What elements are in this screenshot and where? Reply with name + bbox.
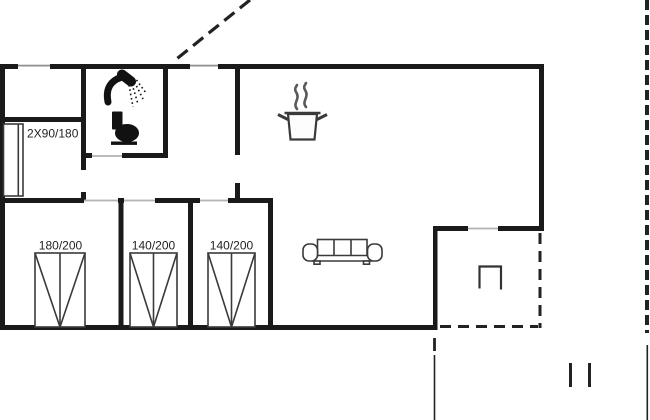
cooking-pot-icon <box>278 83 327 140</box>
bed-1-label: 180/200 <box>39 239 83 253</box>
window <box>18 65 50 67</box>
door-opening <box>468 228 498 230</box>
door-openings <box>84 155 498 229</box>
wall-segment <box>122 153 168 158</box>
floor-plan: 2X90/180 180/200 140/200 140/200 <box>0 0 650 420</box>
terrace-furniture-icon <box>480 267 502 290</box>
toilet-base <box>111 142 137 145</box>
toilet-icon <box>111 112 139 145</box>
shower-icon <box>107 75 146 108</box>
bed-3-label: 140/200 <box>210 239 254 253</box>
steam-wisp <box>304 83 306 107</box>
pot-handle-right <box>317 115 327 120</box>
bed-2-label: 140/200 <box>132 239 176 253</box>
sofa-foot <box>314 261 320 264</box>
wall-segment <box>228 198 273 203</box>
wall-segment <box>433 226 438 330</box>
wall-segment <box>0 64 5 330</box>
toilet-bowl <box>115 124 139 142</box>
wall-segment <box>498 226 544 231</box>
pot-body <box>288 114 317 140</box>
wall-segment <box>188 198 193 330</box>
double-bed-1 <box>35 253 85 327</box>
wall-segment <box>539 64 544 231</box>
floor-plan-drawing: 2X90/180 180/200 140/200 140/200 <box>0 0 650 420</box>
wall-segment <box>218 64 544 69</box>
wall-segment <box>0 117 84 122</box>
steam-wisp <box>295 85 297 109</box>
sofa-back <box>318 240 368 257</box>
wall-segment <box>155 198 200 203</box>
door-opening <box>200 200 228 202</box>
bunk-bed-label: 2X90/180 <box>27 127 79 141</box>
wall-segment <box>0 198 84 203</box>
shower-head <box>122 75 131 82</box>
wall-segment <box>119 198 124 330</box>
window <box>190 65 218 67</box>
sofa-arm-left <box>303 244 318 261</box>
bunk-bed-outline <box>4 124 24 196</box>
boundary-lines <box>174 0 647 420</box>
shower-arm <box>107 77 123 103</box>
spray-line <box>129 85 133 107</box>
wall-segment <box>81 153 92 158</box>
wall-segment <box>163 68 168 158</box>
sofa-icon <box>303 240 382 265</box>
double-bed-3 <box>208 253 255 327</box>
sofa-foot <box>364 261 370 264</box>
door-opening <box>84 200 118 202</box>
sofa-arm-right <box>368 244 383 261</box>
wall-segment <box>235 68 240 155</box>
roof-diagonal-dashed-line <box>174 0 250 61</box>
door-opening <box>92 155 122 157</box>
double-bed-2 <box>130 253 177 327</box>
pot-handle-left <box>278 115 288 120</box>
wall-segment <box>433 226 468 231</box>
sofa-seat <box>311 256 374 262</box>
wall-segment <box>268 198 273 330</box>
spray-line <box>135 82 144 99</box>
wall-segment <box>50 64 190 69</box>
door-opening <box>124 200 155 202</box>
bunk-bed <box>4 124 24 196</box>
spray-line <box>137 80 147 93</box>
